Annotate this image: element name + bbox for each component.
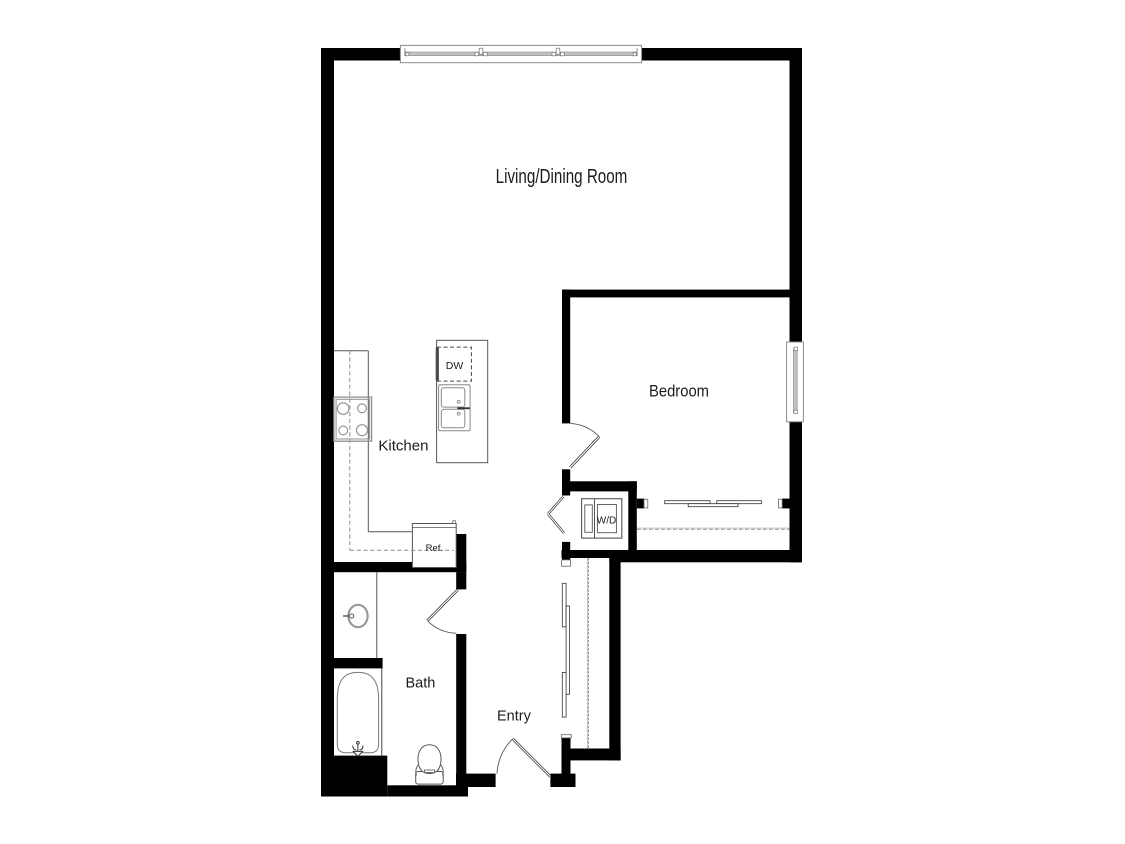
svg-text:Kitchen: Kitchen [378, 437, 428, 454]
svg-text:W/D: W/D [597, 516, 616, 527]
svg-text:Living/Dining Room: Living/Dining Room [496, 165, 628, 188]
svg-text:Bedroom: Bedroom [649, 382, 709, 400]
svg-text:Ref.: Ref. [426, 543, 443, 554]
svg-text:Entry: Entry [497, 709, 532, 725]
svg-text:DW: DW [446, 360, 464, 372]
svg-text:Bath: Bath [406, 676, 436, 692]
